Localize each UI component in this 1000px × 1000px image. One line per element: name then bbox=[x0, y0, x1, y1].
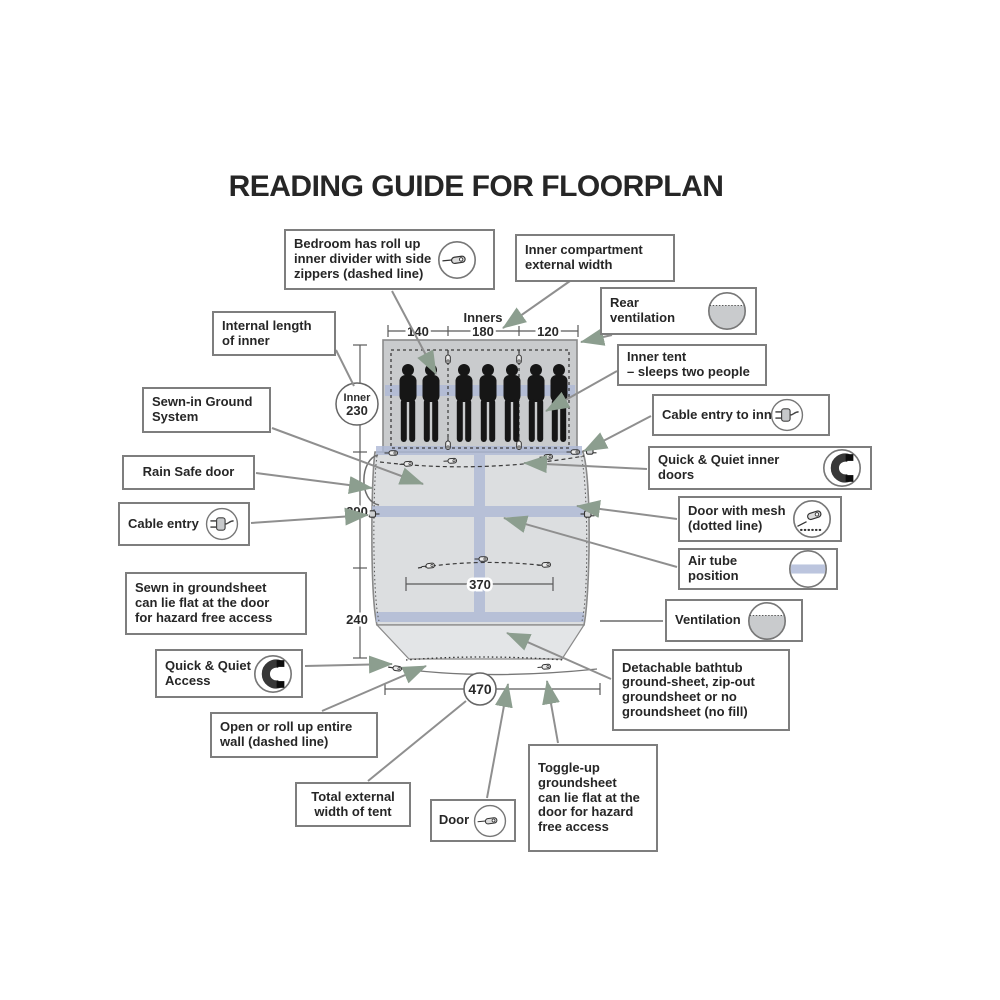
callout-label: Toggle-up groundsheet can lie flat at th… bbox=[538, 761, 640, 834]
callout-label: Door bbox=[439, 813, 469, 828]
width-right-value: 120 bbox=[537, 324, 559, 339]
callout-label: Cable entry to inn bbox=[662, 408, 772, 423]
callout-label: Rain Safe door bbox=[143, 465, 235, 480]
callout-internal-length: Internal length of inner bbox=[212, 311, 336, 356]
callout-cable-entry-inner: Cable entry to inn bbox=[652, 394, 830, 436]
zipper-mesh-icon bbox=[792, 499, 832, 539]
callout-label: Sewn in groundsheet can lie flat at the … bbox=[135, 581, 272, 625]
door-width-value: 370 bbox=[469, 577, 491, 592]
callout-label: Quick & Quiet Access bbox=[165, 659, 251, 688]
callout-label: Inner tent – sleeps two people bbox=[627, 350, 750, 379]
front-length-value: 240 bbox=[346, 612, 368, 627]
callout-label: Internal length of inner bbox=[222, 319, 312, 348]
total-width-value: 470 bbox=[468, 681, 492, 697]
tent-floorplan bbox=[364, 340, 597, 675]
floorplan-diagram: Inners 140 180 120 Inner 230 290 240 370… bbox=[0, 0, 1000, 1000]
callout-qq-inner-doors: Quick & Quiet inner doors bbox=[648, 446, 872, 490]
callout-bedroom-divider: Bedroom has roll up inner divider with s… bbox=[284, 229, 495, 290]
callout-cable-entry: Cable entry bbox=[118, 502, 250, 546]
reading-guide-page: READING GUIDE FOR FLOORPLAN bbox=[0, 0, 1000, 1000]
callout-label: Rear ventilation bbox=[610, 296, 701, 325]
callout-label: Ventilation bbox=[675, 613, 741, 628]
callout-label: Sewn-in Ground System bbox=[152, 395, 252, 424]
zipper-icon bbox=[473, 804, 507, 838]
callout-detachable-groundsheet: Detachable bathtub ground-sheet, zip-out… bbox=[612, 649, 790, 731]
callout-qq-access: Quick & Quiet Access bbox=[155, 649, 303, 698]
callout-label: Open or roll up entire wall (dashed line… bbox=[220, 720, 352, 749]
callout-rain-safe-door: Rain Safe door bbox=[122, 455, 255, 490]
air-tube-icon bbox=[788, 549, 828, 589]
callout-ventilation: Ventilation bbox=[665, 599, 803, 642]
magnet-icon bbox=[253, 654, 293, 694]
callout-label: Quick & Quiet inner doors bbox=[658, 453, 816, 482]
width-mid-value: 180 bbox=[472, 324, 494, 339]
callout-open-roll-wall: Open or roll up entire wall (dashed line… bbox=[210, 712, 378, 758]
inners-label: Inners bbox=[463, 310, 502, 325]
callout-label: Air tube position bbox=[688, 554, 782, 583]
inner-length-value: 230 bbox=[346, 403, 368, 418]
callout-door: Door bbox=[430, 799, 516, 842]
callout-sewn-ground-system: Sewn-in Ground System bbox=[142, 387, 271, 433]
cable-plug-icon bbox=[205, 507, 239, 541]
callout-label: Cable entry bbox=[128, 517, 199, 532]
callout-label: Total external width of tent bbox=[311, 790, 395, 819]
callout-inner-tent: Inner tent – sleeps two people bbox=[617, 344, 767, 386]
cable-plug-icon bbox=[770, 398, 804, 432]
callout-label: Bedroom has roll up inner divider with s… bbox=[294, 237, 431, 281]
callout-inner-compartment: Inner compartment external width bbox=[515, 234, 675, 282]
callout-sewn-groundsheet: Sewn in groundsheet can lie flat at the … bbox=[125, 572, 307, 635]
callout-total-width: Total external width of tent bbox=[295, 782, 411, 827]
callout-label: Inner compartment external width bbox=[525, 243, 643, 272]
callout-label: Detachable bathtub ground-sheet, zip-out… bbox=[622, 661, 755, 720]
ventilation-icon bbox=[707, 291, 747, 331]
callout-door-mesh: Door with mesh (dotted line) bbox=[678, 496, 842, 542]
callout-label: Door with mesh (dotted line) bbox=[688, 504, 786, 533]
callout-air-tube: Air tube position bbox=[678, 548, 838, 590]
zipper-icon bbox=[437, 240, 477, 280]
callout-rear-ventilation: Rear ventilation bbox=[600, 287, 757, 335]
magnet-icon bbox=[822, 448, 862, 488]
ventilation-icon bbox=[747, 601, 787, 641]
callout-toggle-up: Toggle-up groundsheet can lie flat at th… bbox=[528, 744, 658, 852]
